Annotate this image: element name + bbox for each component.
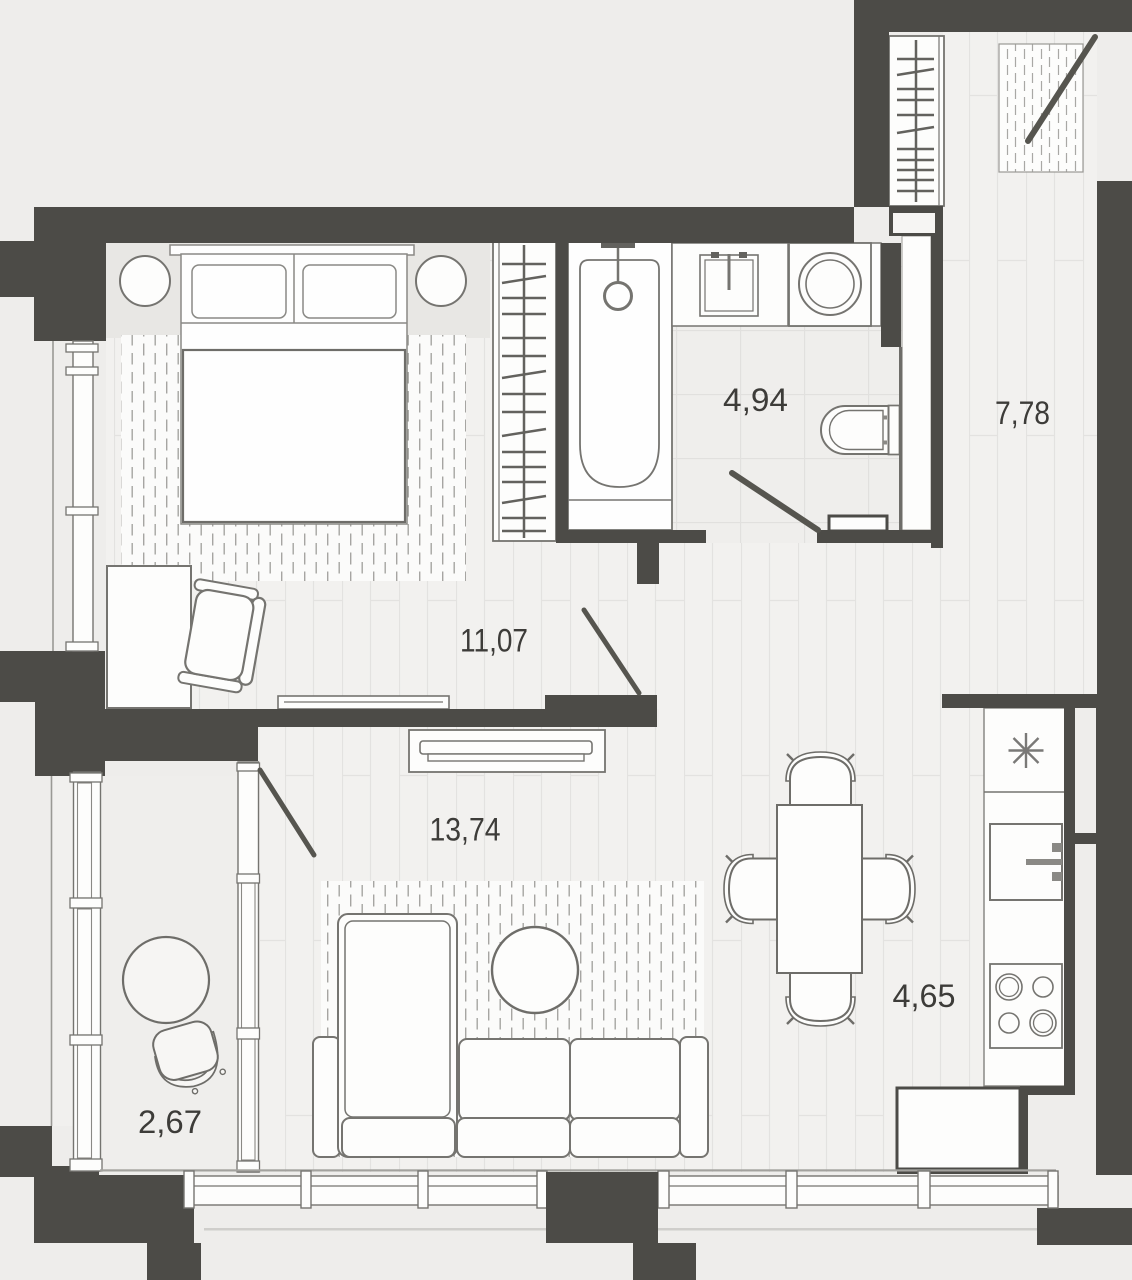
svg-text:7,78: 7,78	[995, 395, 1050, 431]
svg-text:11,07: 11,07	[460, 623, 528, 659]
svg-text:13,74: 13,74	[430, 812, 501, 848]
svg-text:4,94: 4,94	[723, 382, 788, 418]
svg-text:2,67: 2,67	[138, 1104, 202, 1140]
svg-text:4,65: 4,65	[893, 978, 956, 1014]
